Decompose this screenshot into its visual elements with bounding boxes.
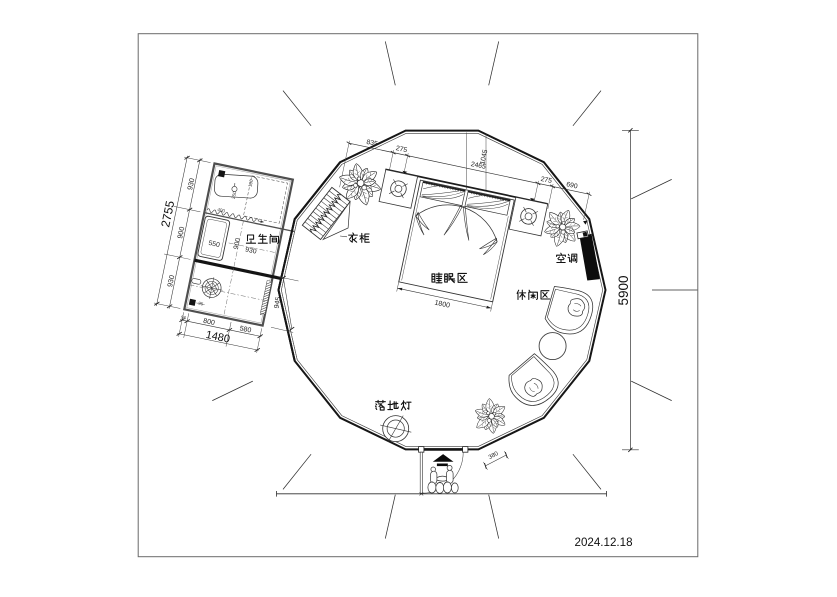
svg-text:5900: 5900 [616, 275, 631, 305]
svg-text:2024.12.18: 2024.12.18 [575, 536, 633, 549]
